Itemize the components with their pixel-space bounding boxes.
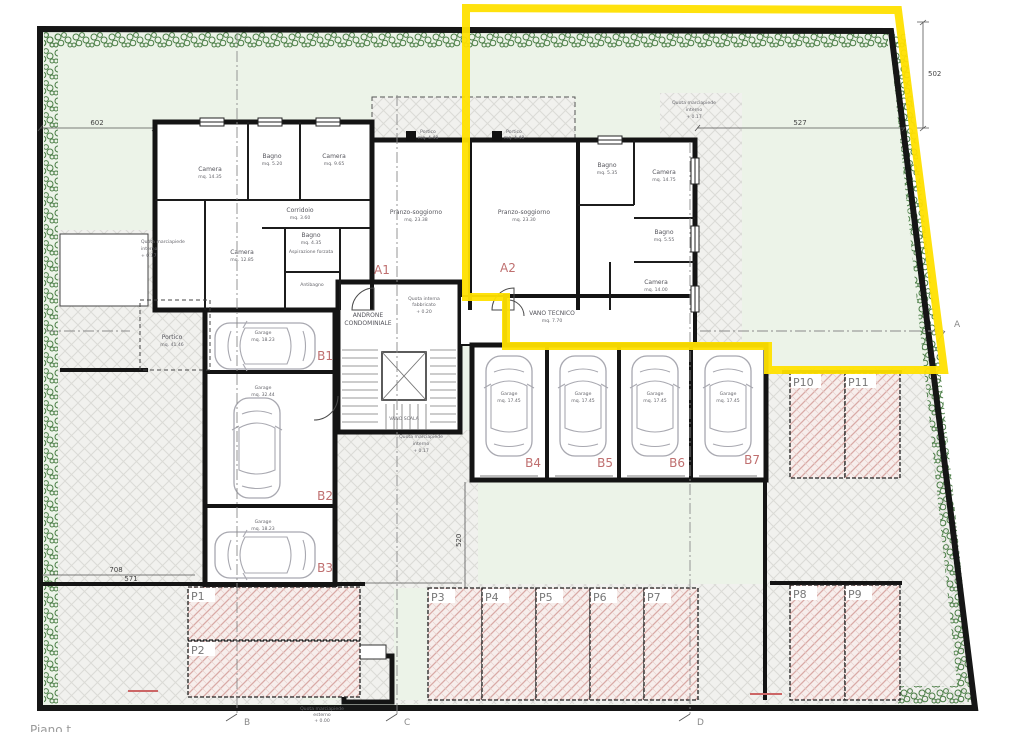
room-name: Bagno	[301, 232, 320, 239]
room-name: VANO SCALA	[389, 416, 419, 422]
garage-tag: B1	[317, 349, 333, 363]
garage-tag: B7	[744, 453, 760, 467]
parking-stall-label: P6	[593, 591, 607, 604]
garage-name: Garage	[575, 391, 592, 397]
garage-name: Garage	[647, 391, 664, 397]
level-note: fabbricato	[412, 302, 436, 308]
garage-area: mq. 17.45	[643, 398, 667, 404]
garage-name: Garage	[255, 519, 272, 525]
room-area: mq. 23.38	[404, 217, 428, 223]
garage-tag: B3	[317, 561, 333, 575]
section-marker-d: D	[697, 718, 704, 728]
garage-tag: B2	[317, 489, 333, 503]
room-area: mq. 14.00	[644, 287, 668, 293]
level-note: + 0.20	[416, 309, 432, 315]
room-area: mq. 23.30	[512, 217, 536, 223]
dim-bottom-a: 708	[109, 566, 122, 574]
garage-name: Garage	[255, 330, 272, 336]
room-name: Portico	[420, 129, 436, 135]
garage-name: Garage	[255, 385, 272, 391]
parking-stall: P5	[536, 588, 590, 700]
parking-stall: P2	[188, 641, 360, 697]
portico-canopy	[372, 97, 575, 140]
room-area: mq. 12.85	[230, 257, 254, 263]
floor-plan-sheet: 602 527 502 520 708 571	[0, 0, 1024, 732]
room-area: mq. 5.20	[262, 161, 283, 167]
room-name: Camera	[230, 249, 254, 256]
parking-stall: P4	[482, 588, 536, 700]
room-area: mq. 7.70	[542, 318, 563, 324]
level-note: Quota marciapiede	[399, 434, 443, 440]
level-note: Quota marciapiede	[672, 100, 716, 106]
room-name: Camera	[652, 169, 676, 176]
bath-vent-note: Aspirazione forzata	[289, 249, 333, 255]
parking-stall-label: P7	[647, 591, 661, 604]
room-name: Bagno	[654, 229, 673, 236]
room-area: mq. 5.55	[654, 237, 675, 243]
site-plan-drawing: 602 527 502 520 708 571	[0, 0, 1024, 732]
parking-stall: P6	[590, 588, 644, 700]
connecting-corridor	[460, 296, 508, 345]
level-note: + 0.17	[141, 253, 157, 259]
dim-bottom-b: 571	[124, 575, 137, 583]
room-name: Camera	[644, 279, 668, 286]
level-note: interno	[686, 107, 703, 113]
dim-court: 520	[455, 534, 463, 547]
sheet-title: Piano t	[30, 723, 71, 732]
garage-area: mq. 17.45	[571, 398, 595, 404]
section-marker-a: A	[954, 320, 961, 330]
room-name: Pranzo-soggiorno	[498, 209, 550, 216]
parking-stall-label: P2	[191, 644, 205, 657]
parking-stall-label: P9	[848, 588, 862, 601]
parking-stall: P3	[428, 588, 482, 700]
level-note: Quota marciapiede	[300, 706, 344, 712]
parking-stall-label: P4	[485, 591, 499, 604]
room-name: Camera	[198, 166, 222, 173]
apartment-tag-a1: A1	[374, 263, 390, 277]
garage-tag: B5	[597, 456, 613, 470]
level-note: + 0.17	[413, 448, 429, 454]
side-terrace	[60, 234, 148, 306]
level-note: interno	[413, 441, 430, 447]
parking-stall: P1	[188, 587, 360, 640]
room-name: Bagno	[597, 162, 616, 169]
garage-name: Garage	[720, 391, 737, 397]
parking-stall-label: P1	[191, 590, 205, 603]
room-area: mq. 3.60	[290, 215, 311, 221]
room-name: Portico	[162, 334, 183, 341]
lawn-strip-right	[394, 588, 427, 700]
parking-stall: P11	[845, 373, 900, 478]
room-name: Bagno	[262, 153, 281, 160]
level-note: Quota interna	[408, 296, 440, 302]
garage-area: mq. 17.45	[497, 398, 521, 404]
garage-name: Garage	[501, 391, 518, 397]
parking-stall: P9	[845, 585, 900, 700]
section-marker-c: C	[404, 718, 410, 728]
room-area: mq. 4.35	[301, 240, 322, 246]
level-note: Quota marciapiede	[141, 239, 185, 245]
parking-stall-label: P10	[793, 376, 814, 389]
parking-stall-label: P11	[848, 376, 869, 389]
parking-stall: P10	[790, 373, 845, 478]
room-name: Pranzo-soggiorno	[390, 209, 442, 216]
parking-stall-label: P5	[539, 591, 553, 604]
parking-stall-label: P3	[431, 591, 445, 604]
section-marker-b: B	[244, 718, 250, 728]
garage-area: mq. 18.23	[251, 337, 275, 343]
room-area: mq. 41.46	[160, 342, 184, 348]
level-note: interno	[141, 246, 158, 252]
garage-area: mq. 18.23	[251, 526, 275, 532]
room-name: Portico	[506, 129, 522, 135]
room-name: CONDOMINIALE	[344, 320, 391, 327]
dim-top-right: 527	[793, 119, 806, 127]
room-name: Antibagno	[300, 282, 324, 288]
parking-stall-label: P8	[793, 588, 807, 601]
room-area: mq. 5.35	[597, 170, 618, 176]
room-name: Corridoio	[286, 207, 314, 214]
garage-area: mq. 32.44	[251, 392, 275, 398]
portico-post	[406, 131, 416, 141]
room-name: ANDRONE	[353, 312, 384, 319]
room-name: Camera	[322, 153, 346, 160]
level-note: + 0.00	[314, 718, 330, 724]
dim-top-left: 602	[90, 119, 103, 127]
garage-area: mq. 17.45	[716, 398, 740, 404]
garage-tag: B4	[525, 456, 541, 470]
room-area: mq. 14.75	[652, 177, 676, 183]
garage-tag: B6	[669, 456, 685, 470]
room-name: VANO TECNICO	[529, 310, 575, 317]
level-note: esterno	[313, 712, 331, 718]
room-area: mq. 14.35	[198, 174, 222, 180]
dim-right: 502	[928, 70, 941, 78]
parking-stall: P8	[790, 585, 845, 700]
portico-post	[492, 131, 502, 141]
apartment-tag-a2: A2	[500, 261, 516, 275]
level-note: + 0.17	[686, 114, 702, 120]
room-area: mq. 9.65	[324, 161, 345, 167]
vano-tecnico-room	[505, 296, 695, 345]
room-area: mq. 4.48	[504, 135, 525, 141]
room-area: mq. 4.48	[418, 135, 439, 141]
